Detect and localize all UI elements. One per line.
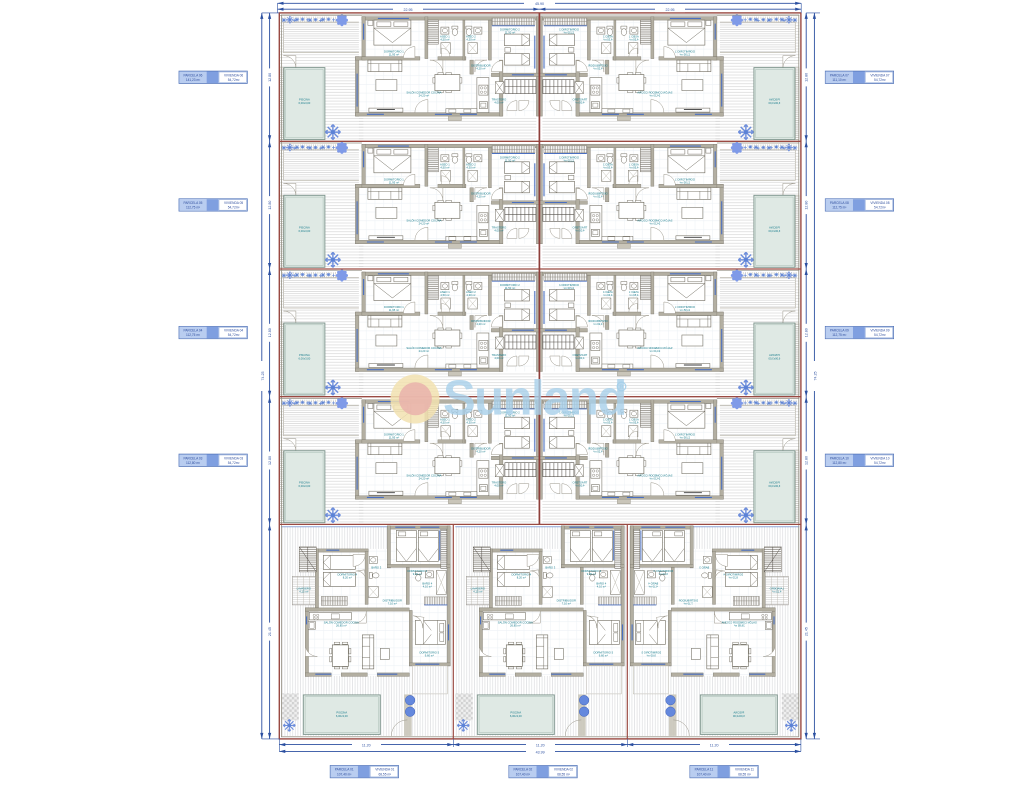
svg-text:22.95: 22.95 [404,8,413,12]
svg-text:54,72m²: 54,72m² [874,333,886,337]
svg-text:54,72m²: 54,72m² [874,78,886,82]
svg-text:VIVIENDA 09: VIVIENDA 09 [870,329,889,333]
svg-text:12.80: 12.80 [805,456,809,465]
svg-text:112,80 m²: 112,80 m² [186,461,200,465]
svg-text:11.20: 11.20 [362,744,371,748]
svg-text:11.20: 11.20 [710,744,719,748]
svg-text:PARCELA 09: PARCELA 09 [830,329,849,333]
svg-text:VIVIENDA 01: VIVIENDA 01 [375,768,394,772]
svg-text:74.25: 74.25 [261,372,265,381]
svg-text:43.99: 43.99 [536,750,545,754]
svg-text:VIVIENDA 03: VIVIENDA 03 [224,456,243,460]
svg-text:54,72m²: 54,72m² [228,206,240,210]
svg-text:PARCELA 02: PARCELA 02 [513,768,532,772]
svg-text:VIVIENDA 08: VIVIENDA 08 [870,201,889,205]
svg-text:112,75 m²: 112,75 m² [186,333,200,337]
svg-text:VIVIENDA 07: VIVIENDA 07 [870,73,889,77]
svg-text:74.25: 74.25 [813,372,817,381]
svg-text:107,40 m²: 107,40 m² [697,772,711,776]
svg-text:PARCELA 03: PARCELA 03 [184,456,203,460]
svg-text:R: R [620,385,624,391]
svg-text:PARCELA 04: PARCELA 04 [184,329,203,333]
svg-text:VIVIENDA 04: VIVIENDA 04 [224,329,243,333]
svg-text:68,55 m²: 68,55 m² [557,772,570,776]
svg-text:VIVIENDA 06: VIVIENDA 06 [224,73,243,77]
svg-text:54,72m²: 54,72m² [874,461,886,465]
svg-text:54,72m²: 54,72m² [228,78,240,82]
svg-text:112,75 m²: 112,75 m² [186,206,200,210]
svg-text:111,10 m²: 111,10 m² [832,78,846,82]
svg-text:112,75 m²: 112,75 m² [832,333,846,337]
svg-text:12.80: 12.80 [268,456,272,465]
svg-text:VIVIENDA 02: VIVIENDA 02 [554,768,573,772]
svg-text:107,40 m²: 107,40 m² [337,772,351,776]
svg-text:VIVIENDA 05: VIVIENDA 05 [224,201,243,205]
svg-text:112,80 m²: 112,80 m² [832,461,846,465]
svg-text:VIVIENDA 10: VIVIENDA 10 [870,456,889,460]
svg-text:11.20: 11.20 [536,744,545,748]
svg-text:Sunland: Sunland [443,372,626,426]
svg-text:21.45: 21.45 [805,627,809,636]
svg-text:12.80: 12.80 [268,328,272,337]
svg-text:107,40 m²: 107,40 m² [516,772,530,776]
svg-text:12.80: 12.80 [268,73,272,82]
svg-text:PARCELA 01: PARCELA 01 [335,768,354,772]
svg-text:PARCELA 11: PARCELA 11 [695,768,714,772]
svg-text:12.80: 12.80 [805,73,809,82]
svg-text:12.80: 12.80 [805,328,809,337]
svg-text:54,72m²: 54,72m² [874,206,886,210]
svg-text:68,55 m²: 68,55 m² [738,772,751,776]
svg-text:112,75 m²: 112,75 m² [832,206,846,210]
svg-text:PARCELA 08: PARCELA 08 [830,201,849,205]
svg-text:54,72m²: 54,72m² [228,333,240,337]
svg-text:21.45: 21.45 [268,627,272,636]
svg-text:PARCELA 07: PARCELA 07 [830,73,849,77]
svg-text:PARCELA 05: PARCELA 05 [184,201,203,205]
svg-text:45.90: 45.90 [535,2,544,6]
svg-text:12.80: 12.80 [805,201,809,210]
svg-text:PARCELA 10: PARCELA 10 [830,456,849,460]
svg-text:VIVIENDA 11: VIVIENDA 11 [735,768,754,772]
svg-text:141,23 m²: 141,23 m² [186,78,200,82]
svg-text:54,72m²: 54,72m² [228,461,240,465]
svg-text:12.80: 12.80 [268,201,272,210]
svg-text:22.95: 22.95 [666,8,675,12]
svg-text:PARCELA 06: PARCELA 06 [184,73,203,77]
svg-text:68,55 m²: 68,55 m² [379,772,392,776]
